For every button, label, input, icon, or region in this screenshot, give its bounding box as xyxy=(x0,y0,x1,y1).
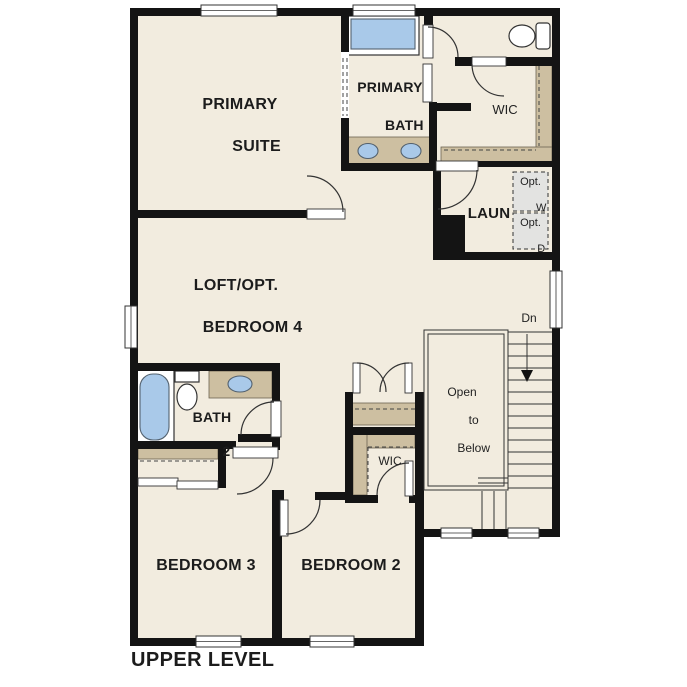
label-line: SUITE xyxy=(232,138,281,155)
door-panel xyxy=(423,25,433,58)
sink-icon xyxy=(228,376,252,392)
room-label-loft: LOFT/OPT. BEDROOM 4 xyxy=(146,275,326,338)
door-panel xyxy=(405,363,412,393)
label-line: Below xyxy=(457,441,490,455)
opt-dryer-label: Opt. D xyxy=(513,217,548,256)
label-line: W xyxy=(536,202,546,214)
stairs-down-label: Dn xyxy=(509,311,549,325)
room-label-primary-suite: PRIMARY SUITE xyxy=(150,94,330,157)
label-line: BATH xyxy=(385,117,424,133)
sink-icon xyxy=(401,144,421,159)
door-opening xyxy=(472,57,506,66)
label-line: Open xyxy=(447,385,476,399)
label-line: to xyxy=(469,413,479,427)
wic-shelf-bottom xyxy=(441,147,552,162)
room-label-bedroom2: BEDROOM 2 xyxy=(261,555,441,576)
toilet-icon xyxy=(509,25,535,47)
toilet-icon xyxy=(177,384,197,410)
door-opening xyxy=(307,209,345,219)
room-label-primary-bath: PRIMARY BATH xyxy=(330,78,450,135)
room-label-bath2: BATH 2 xyxy=(167,409,257,460)
label-line: D xyxy=(537,243,545,255)
sink-icon xyxy=(358,144,378,159)
label-line: Opt. xyxy=(520,217,541,229)
label-line: PRIMARY xyxy=(202,96,277,113)
door-panel xyxy=(280,500,288,536)
floor-plan: PRIMARY SUITE PRIMARY BATH WIC LAUN Opt.… xyxy=(0,0,687,687)
toilet-tank xyxy=(175,371,199,382)
label-line: 2 xyxy=(222,443,230,459)
opt-washer-label: Opt. W xyxy=(513,176,548,215)
linen-closet-shelf xyxy=(351,403,419,425)
toilet-tank xyxy=(536,23,550,49)
label-line: PRIMARY xyxy=(357,79,422,95)
room-label-wic-bedroom2: WIC xyxy=(360,454,420,468)
door-opening xyxy=(271,401,281,437)
bypass-door-panel xyxy=(177,481,218,489)
bathtub-icon xyxy=(140,374,169,440)
label-line: Opt. xyxy=(520,176,541,188)
bypass-door-panel xyxy=(138,478,178,486)
room-label-wic-primary: WIC xyxy=(475,103,535,117)
open-to-below-label: Open to Below xyxy=(432,385,492,455)
label-line: LOFT/OPT. xyxy=(194,277,278,294)
shower-icon xyxy=(351,19,415,49)
door-panel xyxy=(353,363,360,393)
label-line: BATH xyxy=(193,409,232,425)
label-line: BEDROOM 4 xyxy=(203,319,303,336)
level-title: UPPER LEVEL xyxy=(131,649,391,672)
door-opening xyxy=(436,161,478,171)
